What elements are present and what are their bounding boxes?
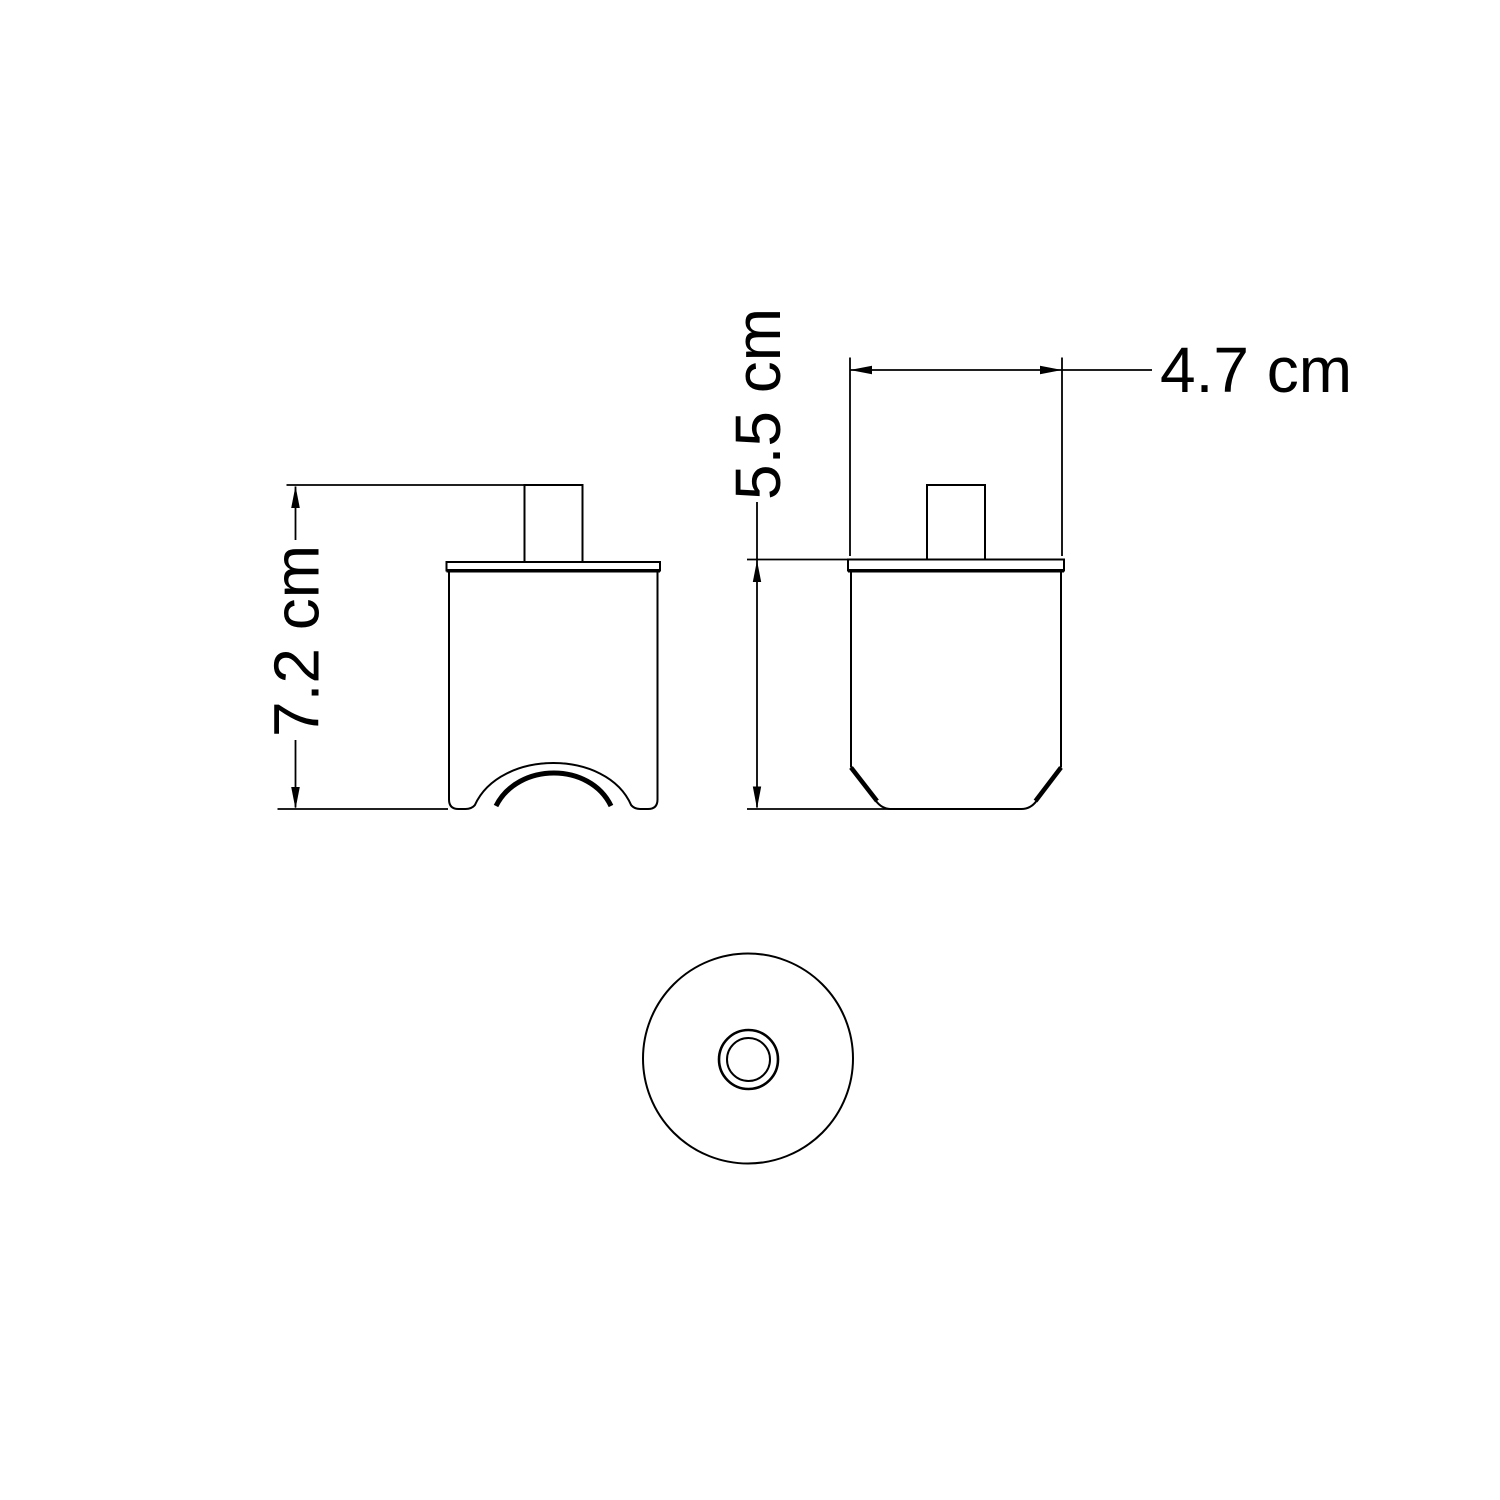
stem-outline xyxy=(525,485,583,562)
arrowhead-down xyxy=(291,787,300,809)
drawing-canvas: 7.2 cm 4.7 cm 5.5 cm xyxy=(0,0,1500,1500)
body-bottom xyxy=(876,801,1037,809)
technical-drawing-page: 7.2 cm 4.7 cm 5.5 cm xyxy=(0,0,1500,1500)
arrowhead-right xyxy=(1040,366,1062,374)
dimension-label-body-height: 5.5 cm xyxy=(722,308,794,500)
dimension-label-width: 4.7 cm xyxy=(1160,334,1352,406)
chamfer-left xyxy=(851,768,877,802)
arrowhead-down xyxy=(753,787,761,809)
center-hole-inner-ring xyxy=(727,1038,770,1081)
arrowhead-up xyxy=(291,486,300,508)
arrowhead-up xyxy=(753,561,761,583)
side-view: 7.2 cm xyxy=(261,485,661,809)
outer-circle xyxy=(643,954,853,1164)
chamfer-right xyxy=(1036,768,1062,802)
notch-gasket-arc xyxy=(496,773,611,806)
dimension-label-overall-height: 7.2 cm xyxy=(261,545,333,737)
cap-band xyxy=(848,560,1064,571)
front-view: 4.7 cm 5.5 cm xyxy=(722,308,1352,809)
arrowhead-left xyxy=(850,366,872,374)
bottom-view xyxy=(643,954,853,1164)
stem-outline xyxy=(927,485,985,560)
